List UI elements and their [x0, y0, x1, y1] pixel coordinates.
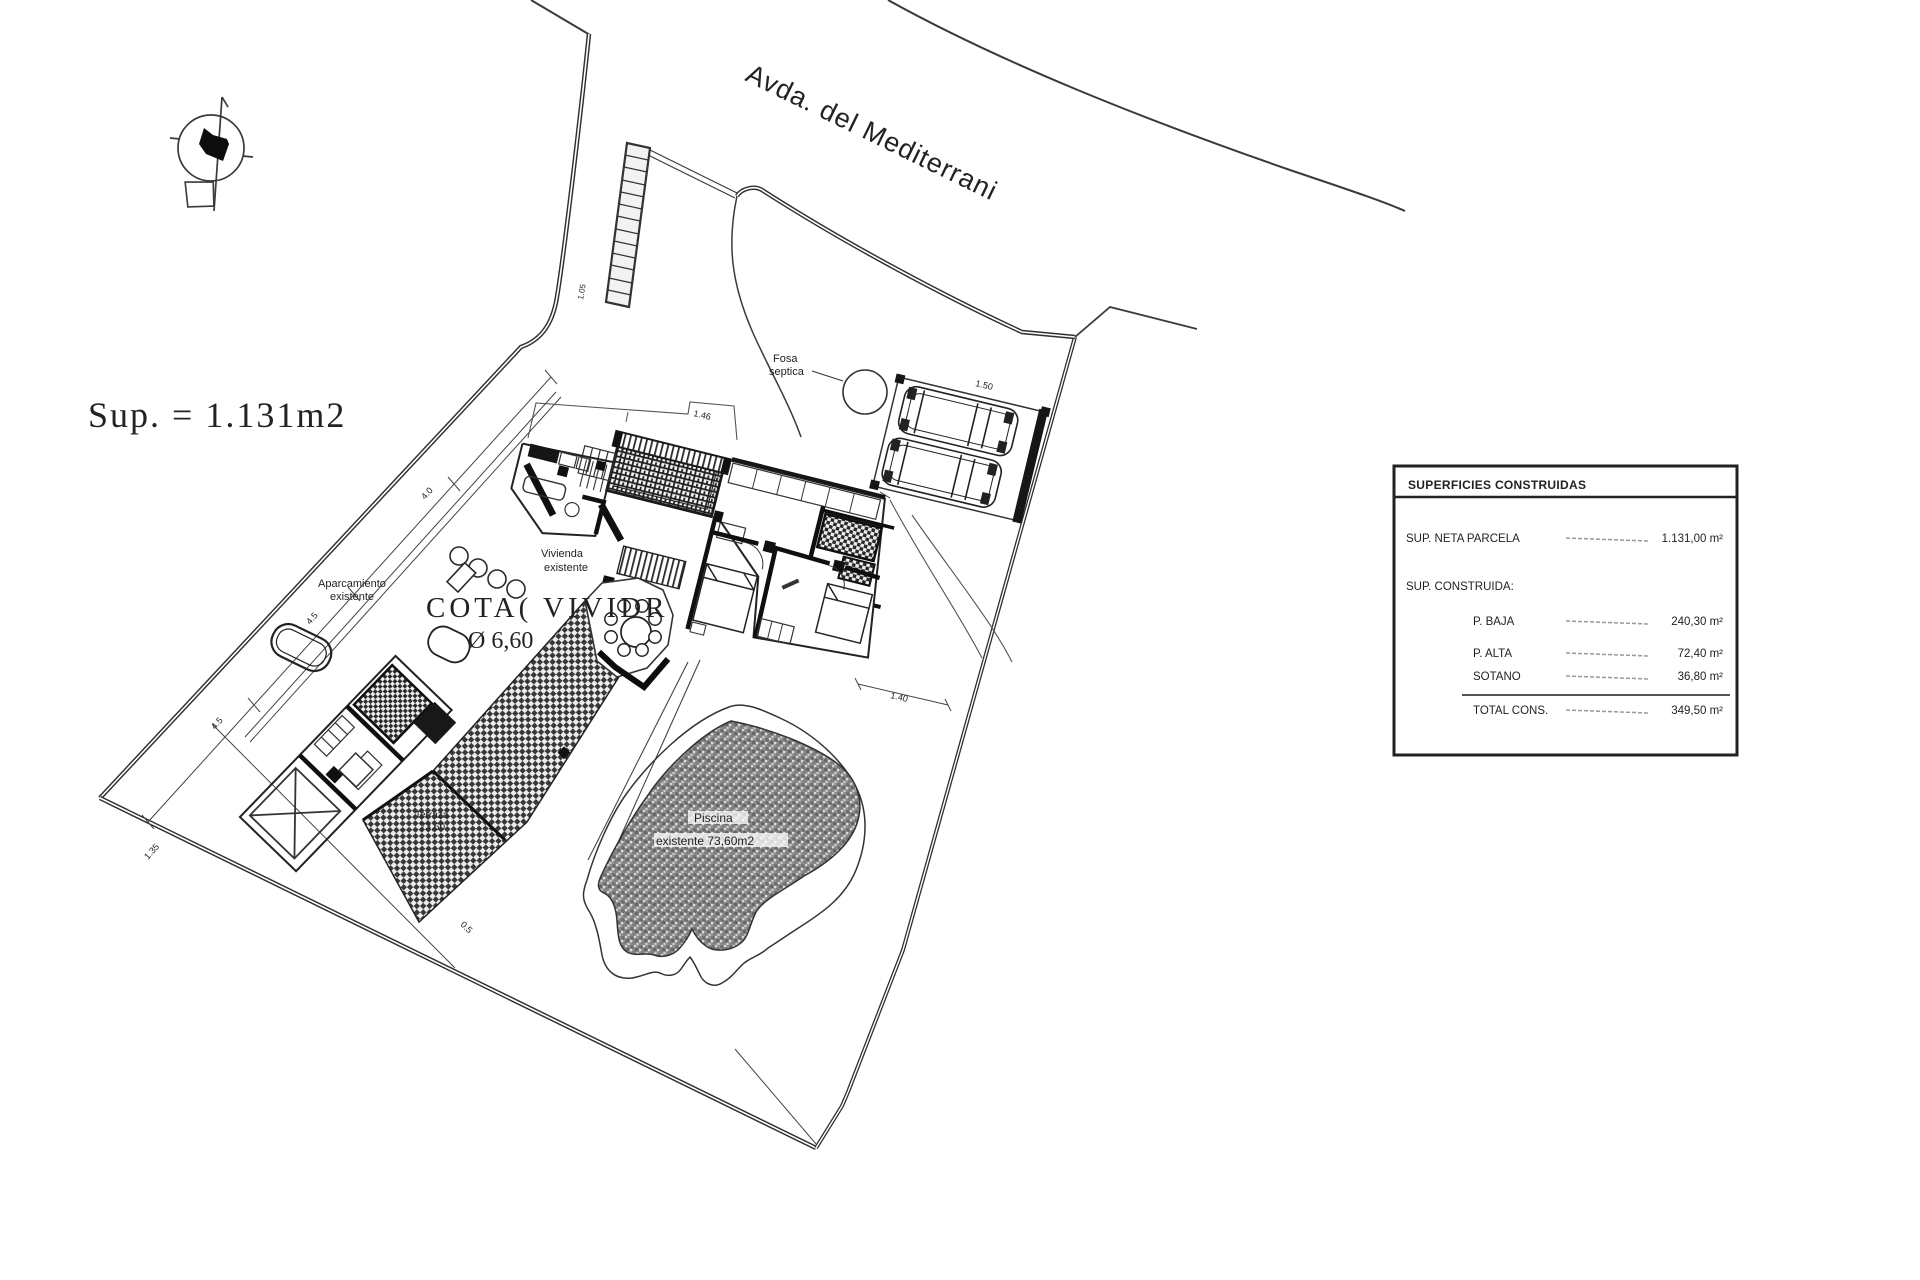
svg-text:P. ALTA: P. ALTA — [1473, 648, 1512, 660]
svg-text:existente: existente — [544, 562, 588, 574]
svg-text:TOTAL CONS.: TOTAL CONS. — [1473, 705, 1548, 717]
svg-text:73,60: 73,60 — [420, 822, 445, 833]
svg-text:COTA( VIVIDR: COTA( VIVIDR — [426, 592, 669, 624]
svg-text:Sup. = 1.131m2: Sup. = 1.131m2 — [88, 395, 346, 435]
svg-text:septica: septica — [769, 366, 805, 378]
svg-text:P. BAJA: P. BAJA — [1473, 616, 1515, 628]
svg-text:1.131,00 m²: 1.131,00 m² — [1662, 533, 1724, 545]
svg-text:SUP. NETA PARCELA: SUP. NETA PARCELA — [1406, 533, 1520, 545]
svg-text:Fosa: Fosa — [773, 353, 798, 365]
svg-text:Terraza: Terraza — [415, 810, 449, 821]
svg-text:349,50 m²: 349,50 m² — [1671, 705, 1723, 717]
svg-text:Piscina: Piscina — [694, 811, 733, 825]
svg-text:72,40 m²: 72,40 m² — [1678, 648, 1724, 660]
svg-text:Ø 6,60: Ø 6,60 — [468, 628, 533, 654]
svg-text:36,80 m²: 36,80 m² — [1678, 671, 1724, 683]
svg-text:SUPERFICIES CONSTRUIDAS: SUPERFICIES CONSTRUIDAS — [1408, 478, 1586, 492]
svg-text:SOTANO: SOTANO — [1473, 671, 1521, 683]
svg-text:Vivienda: Vivienda — [541, 548, 584, 560]
svg-text:Aparcamiento: Aparcamiento — [318, 578, 386, 590]
svg-text:SUP. CONSTRUIDA:: SUP. CONSTRUIDA: — [1406, 581, 1514, 593]
svg-text:240,30 m²: 240,30 m² — [1671, 616, 1723, 628]
svg-text:existente: existente — [330, 591, 374, 603]
svg-text:existente 73,60m2: existente 73,60m2 — [656, 834, 754, 848]
